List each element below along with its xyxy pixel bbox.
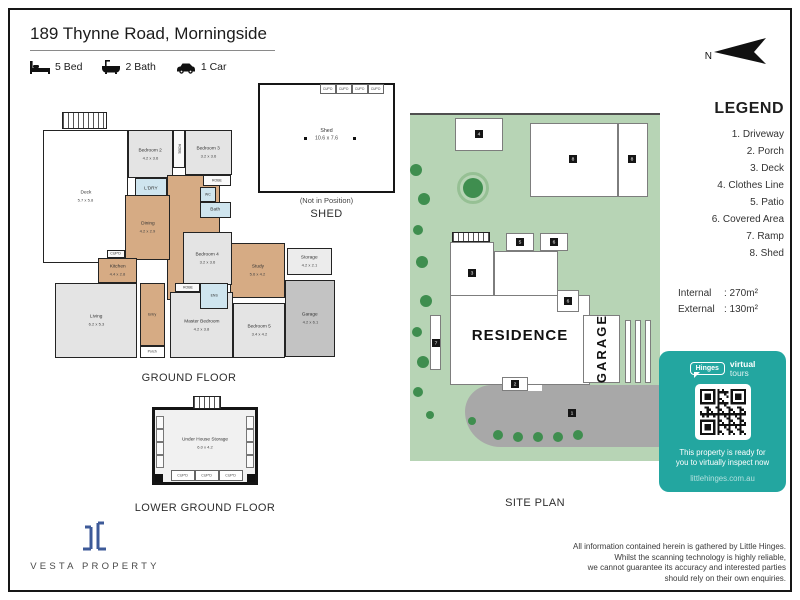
room-label: Study xyxy=(251,264,263,269)
marker-number: 6 xyxy=(567,299,570,304)
legend-item-2-porch: 2. Porch xyxy=(666,143,784,160)
cupboard-label: CUP'D xyxy=(226,474,237,478)
room-dims: 6.2 x 5.3 xyxy=(88,322,104,326)
legend-items: 1. Driveway2. Porch3. Deck4. Clothes Lin… xyxy=(666,126,784,262)
lower-ground-plan: Under House Storage 6.0 x 4.2 CUP'DCUP'D… xyxy=(152,407,258,485)
room-label: Bath xyxy=(211,207,221,212)
north-arrow-icon xyxy=(714,36,766,66)
room-dims: 5.6 x 4.2 xyxy=(250,272,266,276)
shed-note: (Not in Position) xyxy=(258,196,395,205)
room-entry: Entry xyxy=(140,283,165,346)
cupboard-label: CUP'D xyxy=(355,87,365,90)
legend-item-1-driveway: 1. Driveway xyxy=(666,126,784,143)
hinges-logo: Hinges virtual tours xyxy=(667,360,778,377)
room-label: Bedroom 4 xyxy=(196,252,219,257)
tree-icon xyxy=(468,417,476,425)
marker-number: 6 xyxy=(553,240,556,245)
cupboard-cell: CUP'D xyxy=(336,84,352,94)
site-structure xyxy=(645,320,651,383)
marker-number: 2 xyxy=(514,382,517,387)
cupboard-strip-right xyxy=(246,416,254,468)
qr-code-box xyxy=(695,384,751,440)
room-label: Dining xyxy=(141,221,155,226)
caption-shed: SHED xyxy=(258,208,395,220)
room-label: Storage xyxy=(301,255,318,260)
wall-block xyxy=(247,474,255,482)
room-bedroom-3: Bedroom 33.2 x 3.6 xyxy=(185,130,232,175)
room-robe: ROBE xyxy=(175,283,200,292)
cupboard-cell xyxy=(246,429,254,442)
disclaimer-line: Whilst the scanning technology is highly… xyxy=(516,553,786,564)
disclaimer: All information contained herein is gath… xyxy=(516,542,786,584)
legend-item-4-clothes-line: 4. Clothes Line xyxy=(666,177,784,194)
legend: LEGEND 1. Driveway2. Porch3. Deck4. Clot… xyxy=(666,100,784,318)
page-title: 189 Thynne Road, Morningside xyxy=(30,24,290,44)
room-label: Kitchen xyxy=(110,264,126,269)
cupboard-cell xyxy=(156,442,164,455)
hinges-tagline: virtual tours xyxy=(730,360,756,377)
tagline-tours: tours xyxy=(730,369,749,378)
area-row-internal: Internal: 270m² xyxy=(678,286,784,302)
site-marker-4: 4 xyxy=(475,130,483,138)
site-plan: RESIDENCE GARAGE 4883566721 xyxy=(410,113,660,461)
room-dims: 4.2 x 3.6 xyxy=(143,156,159,160)
area-value: : 270m² xyxy=(724,286,758,302)
marker-number: 8 xyxy=(572,157,575,162)
bed-icon xyxy=(30,60,50,74)
cupboard-cell: CUP'D xyxy=(320,84,336,94)
shed-cupboards: CUP'DCUP'DCUP'DCUP'D xyxy=(320,84,384,94)
cupboard-cell xyxy=(156,416,164,429)
cupboard-label: CUP'D xyxy=(371,87,381,90)
marker-number: 7 xyxy=(435,341,438,346)
room-bedroom-4: Bedroom 43.2 x 3.6 xyxy=(183,232,232,285)
site-marker-3: 3 xyxy=(468,269,476,277)
room-kitchen: Kitchen4.4 x 2.8 xyxy=(98,258,137,283)
feature-2-bath: 2 Bath xyxy=(102,60,155,74)
tree-icon xyxy=(412,327,422,337)
hinges-badge: Hinges virtual tours This property is re… xyxy=(659,351,786,492)
vesta-brand-text: VESTA PROPERTY xyxy=(25,561,165,572)
room-dims: 4.2 x 6.1 xyxy=(302,320,318,324)
room-dims: 10.6 x 7.6 xyxy=(277,136,377,141)
site-marker-6: 6 xyxy=(564,297,572,305)
vesta-logo-icon xyxy=(75,519,115,557)
disclaimer-line: All information contained herein is gath… xyxy=(516,542,786,553)
feature-label: 1 Car xyxy=(201,61,227,73)
legend-item-7-ramp: 7. Ramp xyxy=(666,228,784,245)
residence-label: RESIDENCE xyxy=(450,327,590,344)
cupboard-cell xyxy=(156,429,164,442)
bath-icon xyxy=(102,60,120,74)
tree-icon xyxy=(416,256,428,268)
room-dims: 3.2 x 3.6 xyxy=(200,260,216,264)
badge-message-line: This property is ready for xyxy=(667,448,778,458)
cupboard-label: CUP'D xyxy=(339,87,349,90)
cupboard-cell: CUP'D xyxy=(352,84,368,94)
site-structure xyxy=(625,320,631,383)
room-dims: 4.2 x 2.1 xyxy=(302,263,318,267)
room-label: ROBE xyxy=(177,144,181,154)
disclaimer-line: we cannot guarantee its accuracy and int… xyxy=(516,563,786,574)
area-value: : 130m² xyxy=(724,302,758,318)
room-ens: ENS xyxy=(200,283,228,309)
room-dims: 6.0 x 4.2 xyxy=(176,445,234,449)
cupboard-cell: CUP'D xyxy=(219,470,243,481)
room-label: L'DRY xyxy=(144,186,158,191)
room-robe: ROBE xyxy=(203,175,231,186)
marker-number: 8 xyxy=(631,157,634,162)
site-marker-7: 7 xyxy=(432,339,440,347)
room-label: ROBE xyxy=(183,286,193,290)
room-bedroom-5: Bedroom 53.4 x 4.2 xyxy=(233,303,285,358)
car-icon xyxy=(176,61,196,74)
cupboard-cell: CUP'D xyxy=(368,84,384,94)
cupboard-label: CUP'D xyxy=(323,87,333,90)
legend-item-5-patio: 5. Patio xyxy=(666,194,784,211)
caption-ground-floor: GROUND FLOOR xyxy=(43,372,335,384)
cupboard-cell xyxy=(156,455,164,468)
north-arrow: N xyxy=(705,36,766,66)
room-label: Bedroom 2 xyxy=(139,148,162,153)
garage-label-wrap: GARAGE xyxy=(583,315,620,383)
marker-number: 4 xyxy=(478,132,481,137)
shed-plan: CUP'DCUP'DCUP'DCUP'D Shed 10.6 x 7.6 xyxy=(258,83,395,193)
cupboard-cell: CUP'D xyxy=(171,470,195,481)
room-living: Living6.2 x 5.3 xyxy=(55,283,137,358)
tree-icon xyxy=(413,225,423,235)
tree-icon xyxy=(493,430,503,440)
site-marker-1: 1 xyxy=(568,409,576,417)
feature-label: 5 Bed xyxy=(55,61,82,73)
tree-icon xyxy=(553,432,563,442)
cupboard-label: CUP'D xyxy=(202,474,213,478)
room-dims: 3.4 x 4.2 xyxy=(251,332,267,336)
badge-message: This property is ready for you to virtua… xyxy=(667,448,778,468)
tree-icon xyxy=(413,387,423,397)
room-label: Porch xyxy=(148,350,157,354)
marker-number: 5 xyxy=(519,240,522,245)
feature-label: 2 Bath xyxy=(125,61,155,73)
feature-list: 5 Bed2 Bath1 Car xyxy=(30,60,290,74)
room-cup-d: CUP'D xyxy=(107,250,125,258)
feature-5-bed: 5 Bed xyxy=(30,60,82,74)
room-label: Deck xyxy=(80,190,91,195)
cupboard-cell xyxy=(246,416,254,429)
garage-label: GARAGE xyxy=(594,314,609,383)
site-structure xyxy=(635,320,641,383)
room-robe: ROBE xyxy=(173,130,185,168)
room-label: Bedroom 5 xyxy=(247,324,270,329)
cupboard-cell xyxy=(246,442,254,455)
lower-cupboards: CUP'DCUP'DCUP'D xyxy=(171,470,243,481)
header: 189 Thynne Road, Morningside 5 Bed2 Bath… xyxy=(30,24,290,74)
room-label: CUP'D xyxy=(111,252,122,256)
area-row-external: External: 130m² xyxy=(678,302,784,318)
disclaimer-line: should rely on their own enquiries. xyxy=(516,574,786,585)
room-dims: 4.2 x 2.9 xyxy=(140,229,156,233)
area-label: Internal xyxy=(678,286,724,302)
caption-site-plan: SITE PLAN xyxy=(410,497,660,509)
site-marker-2: 2 xyxy=(511,380,519,388)
room-study: Study5.6 x 4.2 xyxy=(230,243,285,298)
cupboard-label: CUP'D xyxy=(178,474,189,478)
site-structure xyxy=(494,251,558,299)
tree-icon xyxy=(418,193,430,205)
room-porch: Porch xyxy=(140,346,165,358)
site-marker-8: 8 xyxy=(569,155,577,163)
room-label: Shed xyxy=(277,128,377,134)
site-marker-8: 8 xyxy=(628,155,636,163)
legend-title: LEGEND xyxy=(666,100,784,118)
badge-url: littlehinges.com.au xyxy=(667,474,778,483)
room-garage: Garage4.2 x 6.1 xyxy=(285,280,335,357)
site-marker-6: 6 xyxy=(550,238,558,246)
room-label: Living xyxy=(90,314,102,319)
stairs-icon xyxy=(62,112,107,129)
legend-item-8-shed: 8. Shed xyxy=(666,245,784,262)
room-bath: Bath xyxy=(200,202,231,218)
room-label: Garage xyxy=(302,312,318,317)
lower-ground-label: Under House Storage 6.0 x 4.2 xyxy=(155,436,255,451)
badge-message-line: you to virtually inspect now xyxy=(667,458,778,468)
site-marker-5: 5 xyxy=(516,238,524,246)
tree-icon xyxy=(420,295,432,307)
cupboard-cell xyxy=(246,455,254,468)
tree-icon xyxy=(533,432,543,442)
qr-code xyxy=(700,389,746,435)
stairs-icon xyxy=(193,396,221,409)
tree-icon xyxy=(426,411,434,419)
room-dims: 4.4 x 2.8 xyxy=(110,272,126,276)
marker-number: 1 xyxy=(571,411,574,416)
marker-number: 3 xyxy=(471,271,474,276)
site-hatch xyxy=(452,232,490,242)
legend-item-6-covered-area: 6. Covered Area xyxy=(666,211,784,228)
wall-block xyxy=(155,474,163,482)
shed-room-label: Shed 10.6 x 7.6 xyxy=(260,127,393,142)
room-dining: Dining4.2 x 2.9 xyxy=(125,195,170,260)
room-label: Entry xyxy=(148,313,156,317)
room-label: WC xyxy=(205,193,211,197)
room-dims: 3.2 x 3.6 xyxy=(201,154,217,158)
room-wc: WC xyxy=(200,187,216,202)
room-label: Bedroom 3 xyxy=(197,146,220,151)
tree-icon xyxy=(417,356,429,368)
room-deck: Deck5.7 x 5.8 xyxy=(43,130,128,263)
tree-icon xyxy=(463,178,483,198)
room-dims: 4.2 x 3.8 xyxy=(194,327,210,331)
room-label: Master Bedroom xyxy=(184,319,219,324)
north-label: N xyxy=(705,51,712,62)
feature-1-car: 1 Car xyxy=(176,61,227,74)
room-bedroom-2: Bedroom 24.2 x 3.6 xyxy=(128,130,173,178)
tree-icon xyxy=(410,164,422,176)
cupboard-strip-left xyxy=(156,416,164,468)
cupboard-cell: CUP'D xyxy=(195,470,219,481)
room-label: ROBE xyxy=(212,179,222,183)
legend-areas: Internal: 270m²External: 130m² xyxy=(666,286,784,318)
caption-lower-ground: LOWER GROUND FLOOR xyxy=(105,502,305,514)
room-dims: 5.7 x 5.8 xyxy=(78,198,94,202)
room-label: Under House Storage xyxy=(171,437,239,442)
room-storage: Storage4.2 x 2.1 xyxy=(287,248,332,275)
tree-icon xyxy=(573,430,583,440)
room-label: ENS xyxy=(210,294,217,298)
vesta-logo: VESTA PROPERTY xyxy=(25,519,165,572)
area-label: External xyxy=(678,302,724,318)
hinges-logo-bubble: Hinges xyxy=(690,362,725,375)
tree-icon xyxy=(513,432,523,442)
title-underline xyxy=(30,50,275,51)
legend-item-3-deck: 3. Deck xyxy=(666,160,784,177)
